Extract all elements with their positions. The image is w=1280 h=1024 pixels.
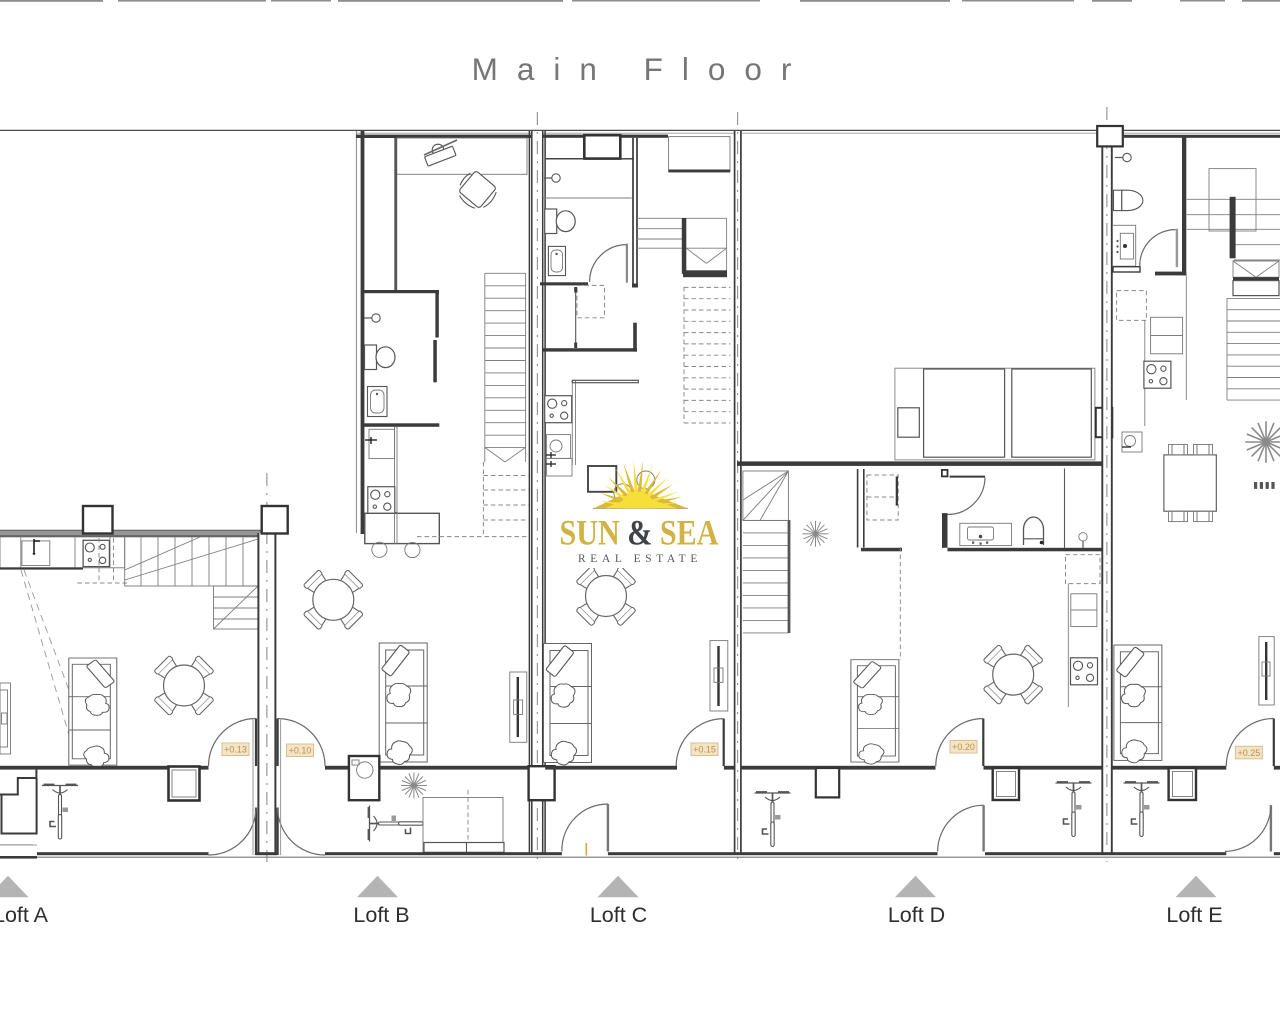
svg-text:+0.20: +0.20 [952,742,975,752]
svg-text:Loft E: Loft E [1166,903,1222,927]
svg-text:+0.15: +0.15 [693,745,716,755]
svg-text:SUN & SEA: SUN & SEA [560,513,719,553]
svg-text:+0.25: +0.25 [1238,748,1261,758]
svg-text:Loft A: Loft A [0,903,49,927]
svg-text:Loft C: Loft C [590,903,647,927]
svg-text:Main Floor: Main Floor [472,51,811,87]
svg-text:+0.10: +0.10 [289,746,312,756]
svg-text:REAL ESTATE: REAL ESTATE [578,553,702,565]
svg-text:+0.13: +0.13 [224,745,247,755]
svg-text:Loft B: Loft B [353,903,409,927]
svg-text:Loft D: Loft D [888,903,945,927]
